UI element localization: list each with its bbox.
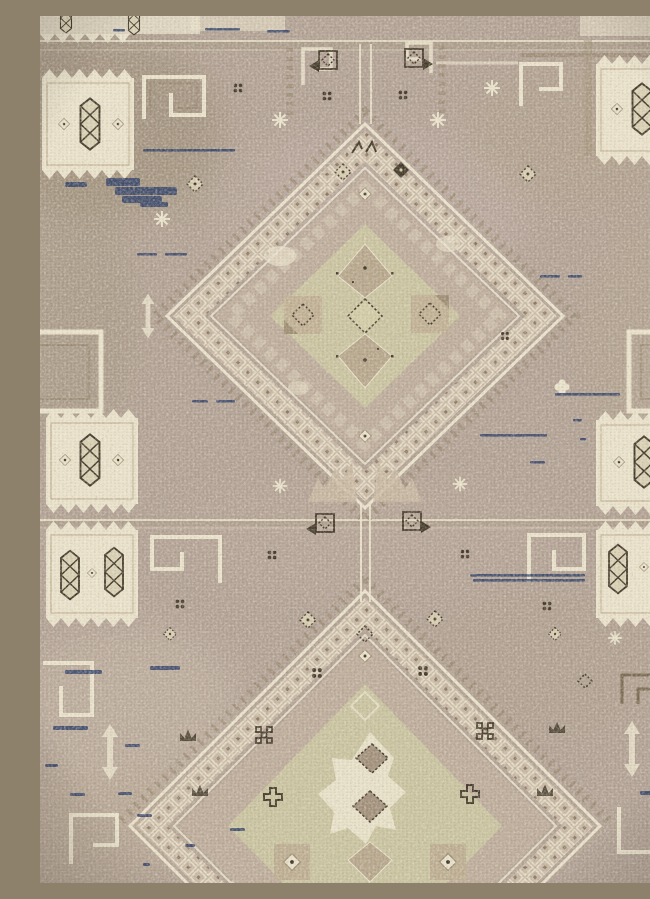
fabric-texture	[40, 16, 650, 883]
rug-canvas	[40, 16, 650, 883]
rug-photo	[40, 16, 650, 883]
